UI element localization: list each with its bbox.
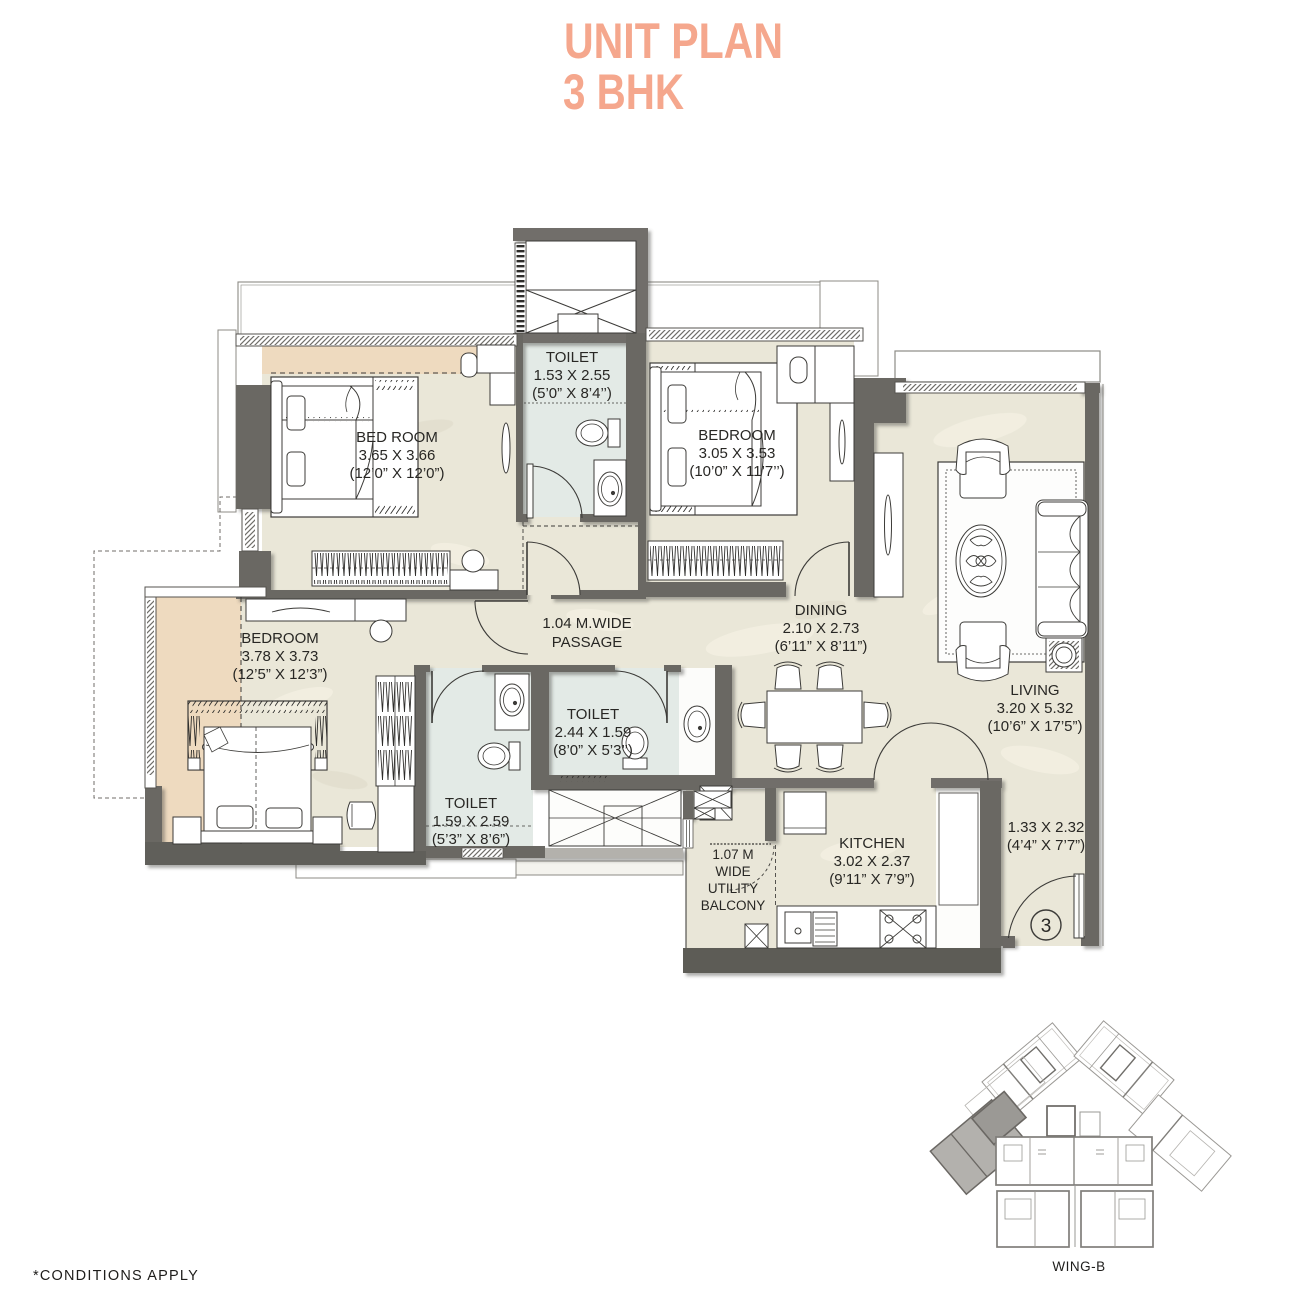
svg-text:UNIT PLAN: UNIT PLAN <box>564 13 783 69</box>
svg-text:3 BHK: 3 BHK <box>563 64 684 120</box>
svg-text:(12’5” X 12’3”): (12’5” X 12’3”) <box>232 666 327 683</box>
svg-text:3.65 X 3.66: 3.65 X 3.66 <box>359 447 436 464</box>
svg-text:PASSAGE: PASSAGE <box>552 634 623 651</box>
svg-text:(5’0” X 8’4’’): (5’0” X 8’4’’) <box>532 385 612 402</box>
svg-text:3.78 X 3.73: 3.78 X 3.73 <box>242 648 319 665</box>
svg-text:3.05 X 3.53: 3.05 X 3.53 <box>699 445 776 462</box>
svg-text:(10’6” X 17’5”): (10’6” X 17’5”) <box>987 718 1082 735</box>
svg-text:DINING: DINING <box>795 602 848 619</box>
svg-text:BEDROOM: BEDROOM <box>241 630 319 647</box>
svg-text:LIVING: LIVING <box>1010 682 1059 699</box>
svg-text:*CONDITIONS APPLY: *CONDITIONS APPLY <box>33 1268 199 1284</box>
svg-text:2.44 X 1.59: 2.44 X 1.59 <box>555 724 632 741</box>
svg-text:TOILET: TOILET <box>445 795 497 812</box>
svg-text:2.10 X 2.73: 2.10 X 2.73 <box>783 620 860 637</box>
svg-text:3: 3 <box>1041 916 1052 937</box>
svg-text:3.20 X 5.32: 3.20 X 5.32 <box>997 700 1074 717</box>
svg-text:BEDROOM: BEDROOM <box>698 427 776 444</box>
svg-text:3.02 X 2.37: 3.02 X 2.37 <box>834 853 911 870</box>
svg-text:(9’11” X 7’9”): (9’11” X 7’9”) <box>829 871 915 888</box>
svg-text:1.07 M: 1.07 M <box>712 847 753 862</box>
svg-text:(6’11” X 8’11”): (6’11” X 8’11”) <box>775 638 868 655</box>
svg-text:BED ROOM: BED ROOM <box>356 429 438 446</box>
svg-text:(12’0” X 12’0”): (12’0” X 12’0”) <box>349 465 444 482</box>
svg-text:BALCONY: BALCONY <box>701 898 766 913</box>
svg-text:TOILET: TOILET <box>546 349 598 366</box>
svg-text:(4’4” X 7’7”): (4’4” X 7’7”) <box>1007 837 1085 854</box>
svg-text:WING-B: WING-B <box>1052 1259 1105 1274</box>
svg-text:TOILET: TOILET <box>567 706 619 723</box>
svg-text:(10’0” X 11’7’’): (10’0” X 11’7’’) <box>689 463 784 480</box>
svg-text:(8’0” X 5’3’’): (8’0” X 5’3’’) <box>553 742 633 759</box>
svg-text:WIDE: WIDE <box>715 864 750 879</box>
svg-text:(5’3” X 8’6”): (5’3” X 8’6”) <box>432 831 510 848</box>
svg-text:UTILITY: UTILITY <box>708 881 758 896</box>
svg-text:KITCHEN: KITCHEN <box>839 835 905 852</box>
svg-text:1.33 X 2.32: 1.33 X 2.32 <box>1008 819 1085 836</box>
svg-text:1.59 X 2.59: 1.59 X 2.59 <box>433 813 510 830</box>
svg-text:1.53 X 2.55: 1.53 X 2.55 <box>534 367 611 384</box>
svg-text:1.04 M.WIDE: 1.04 M.WIDE <box>542 615 631 632</box>
